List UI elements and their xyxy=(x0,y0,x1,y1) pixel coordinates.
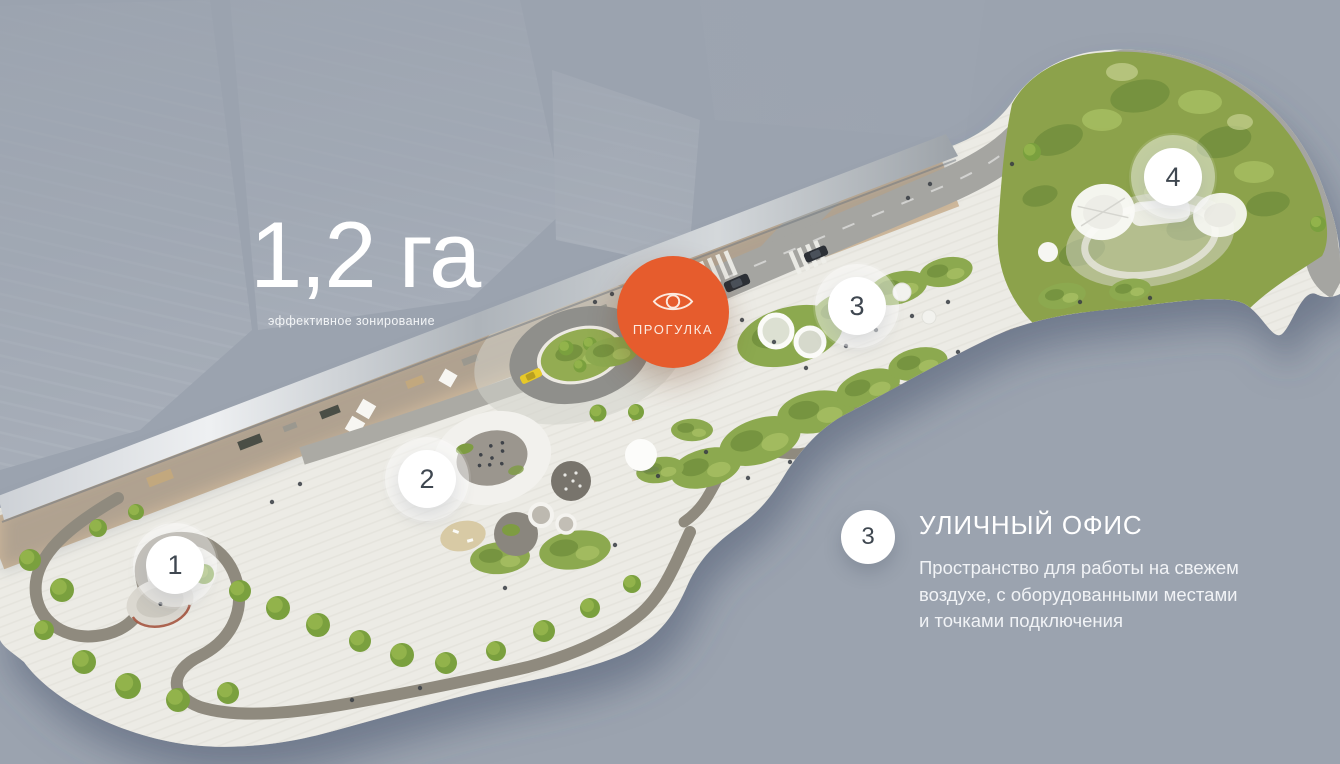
eye-icon xyxy=(651,288,695,315)
map-marker-2-number: 2 xyxy=(419,464,434,495)
legend-number-badge: 3 xyxy=(841,510,895,564)
legend-description-line-2: воздухе, с оборудованными местами xyxy=(919,582,1239,609)
masterplan-render xyxy=(0,0,1340,764)
map-marker-4-number: 4 xyxy=(1165,162,1180,193)
legend-description-line-1: Пространство для работы на свежем xyxy=(919,555,1239,582)
legend-body: УЛИЧНЫЙ ОФИС Пространство для работы на … xyxy=(919,510,1239,635)
map-marker-3[interactable]: 3 xyxy=(828,277,886,335)
map-marker-3-number: 3 xyxy=(849,291,864,322)
legend-title: УЛИЧНЫЙ ОФИС xyxy=(919,510,1239,538)
tour-button-label: ПРОГУЛКА xyxy=(633,322,713,337)
area-stat: 1,2 га эффективное зонирование xyxy=(250,208,479,328)
map-marker-1-number: 1 xyxy=(167,550,182,581)
area-stat-label: эффективное зонирование xyxy=(268,314,479,328)
legend-description-line-3: и точками подключения xyxy=(919,608,1239,635)
map-marker-2[interactable]: 2 xyxy=(398,450,456,508)
tour-button[interactable]: ПРОГУЛКА xyxy=(617,256,729,368)
legend-description: Пространство для работы на свежем воздух… xyxy=(919,555,1239,635)
map-marker-1[interactable]: 1 xyxy=(146,536,204,594)
legend-item: 3 УЛИЧНЫЙ ОФИС Пространство для работы н… xyxy=(841,510,1239,635)
area-stat-value: 1,2 га xyxy=(250,208,479,302)
legend-number: 3 xyxy=(861,523,874,551)
masterplan-slide: 1,2 га эффективное зонирование ПРОГУЛКА … xyxy=(0,0,1340,764)
map-marker-4[interactable]: 4 xyxy=(1144,148,1202,206)
